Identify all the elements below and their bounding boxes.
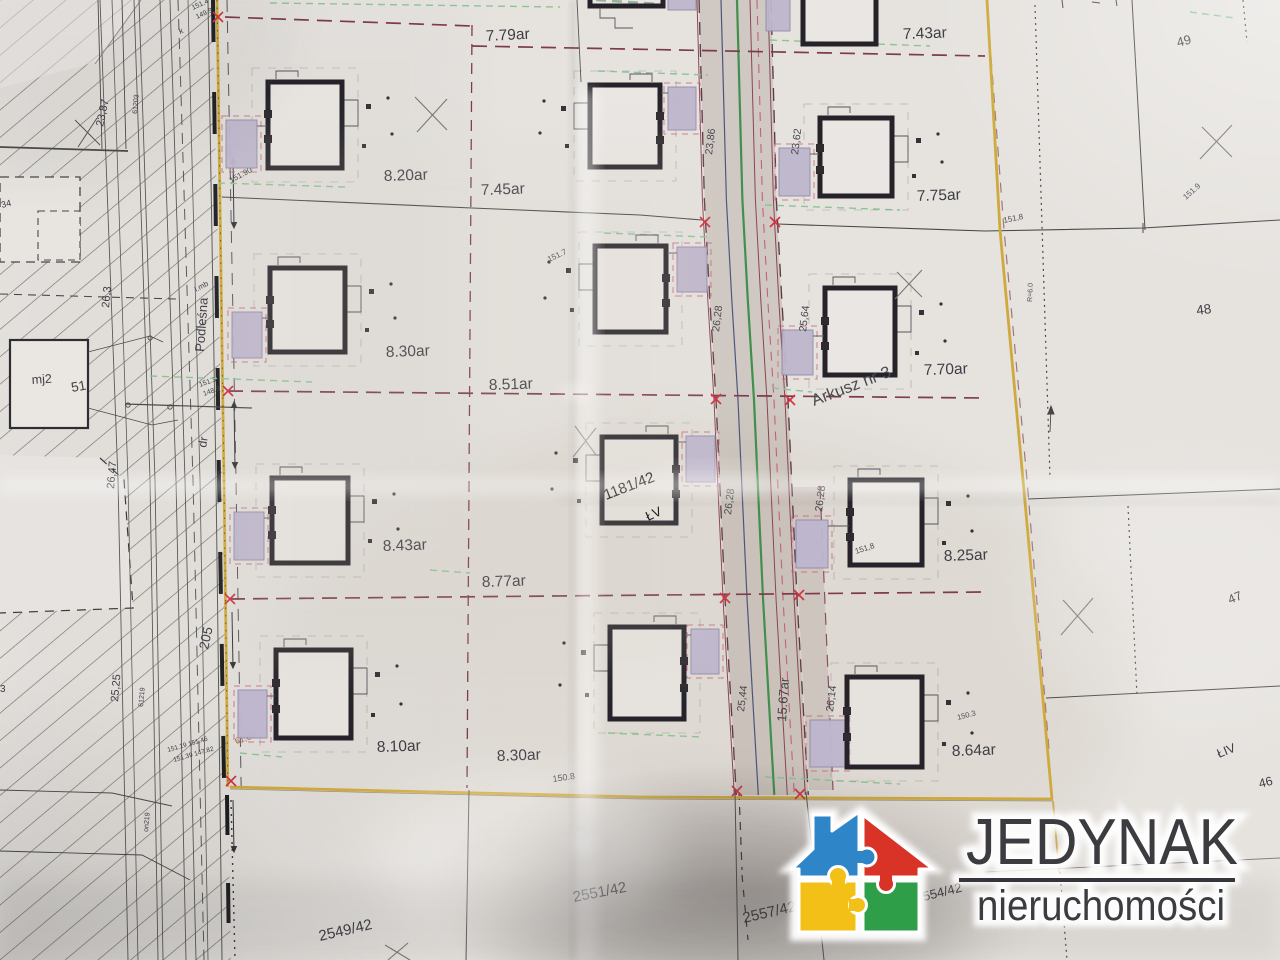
svg-text:nieruchomości: nieruchomości <box>977 882 1225 930</box>
svg-text:8.25ar: 8.25ar <box>944 546 989 565</box>
svg-text:51: 51 <box>70 378 87 395</box>
svg-text:7.79ar: 7.79ar <box>485 26 530 45</box>
svg-text:15.67ar: 15.67ar <box>774 677 792 723</box>
svg-text:mj2: mj2 <box>31 372 52 387</box>
svg-text:JEDYNAK: JEDYNAK <box>966 805 1238 878</box>
svg-text:26,3: 26,3 <box>100 286 114 308</box>
svg-text:8.64ar: 8.64ar <box>952 741 997 760</box>
